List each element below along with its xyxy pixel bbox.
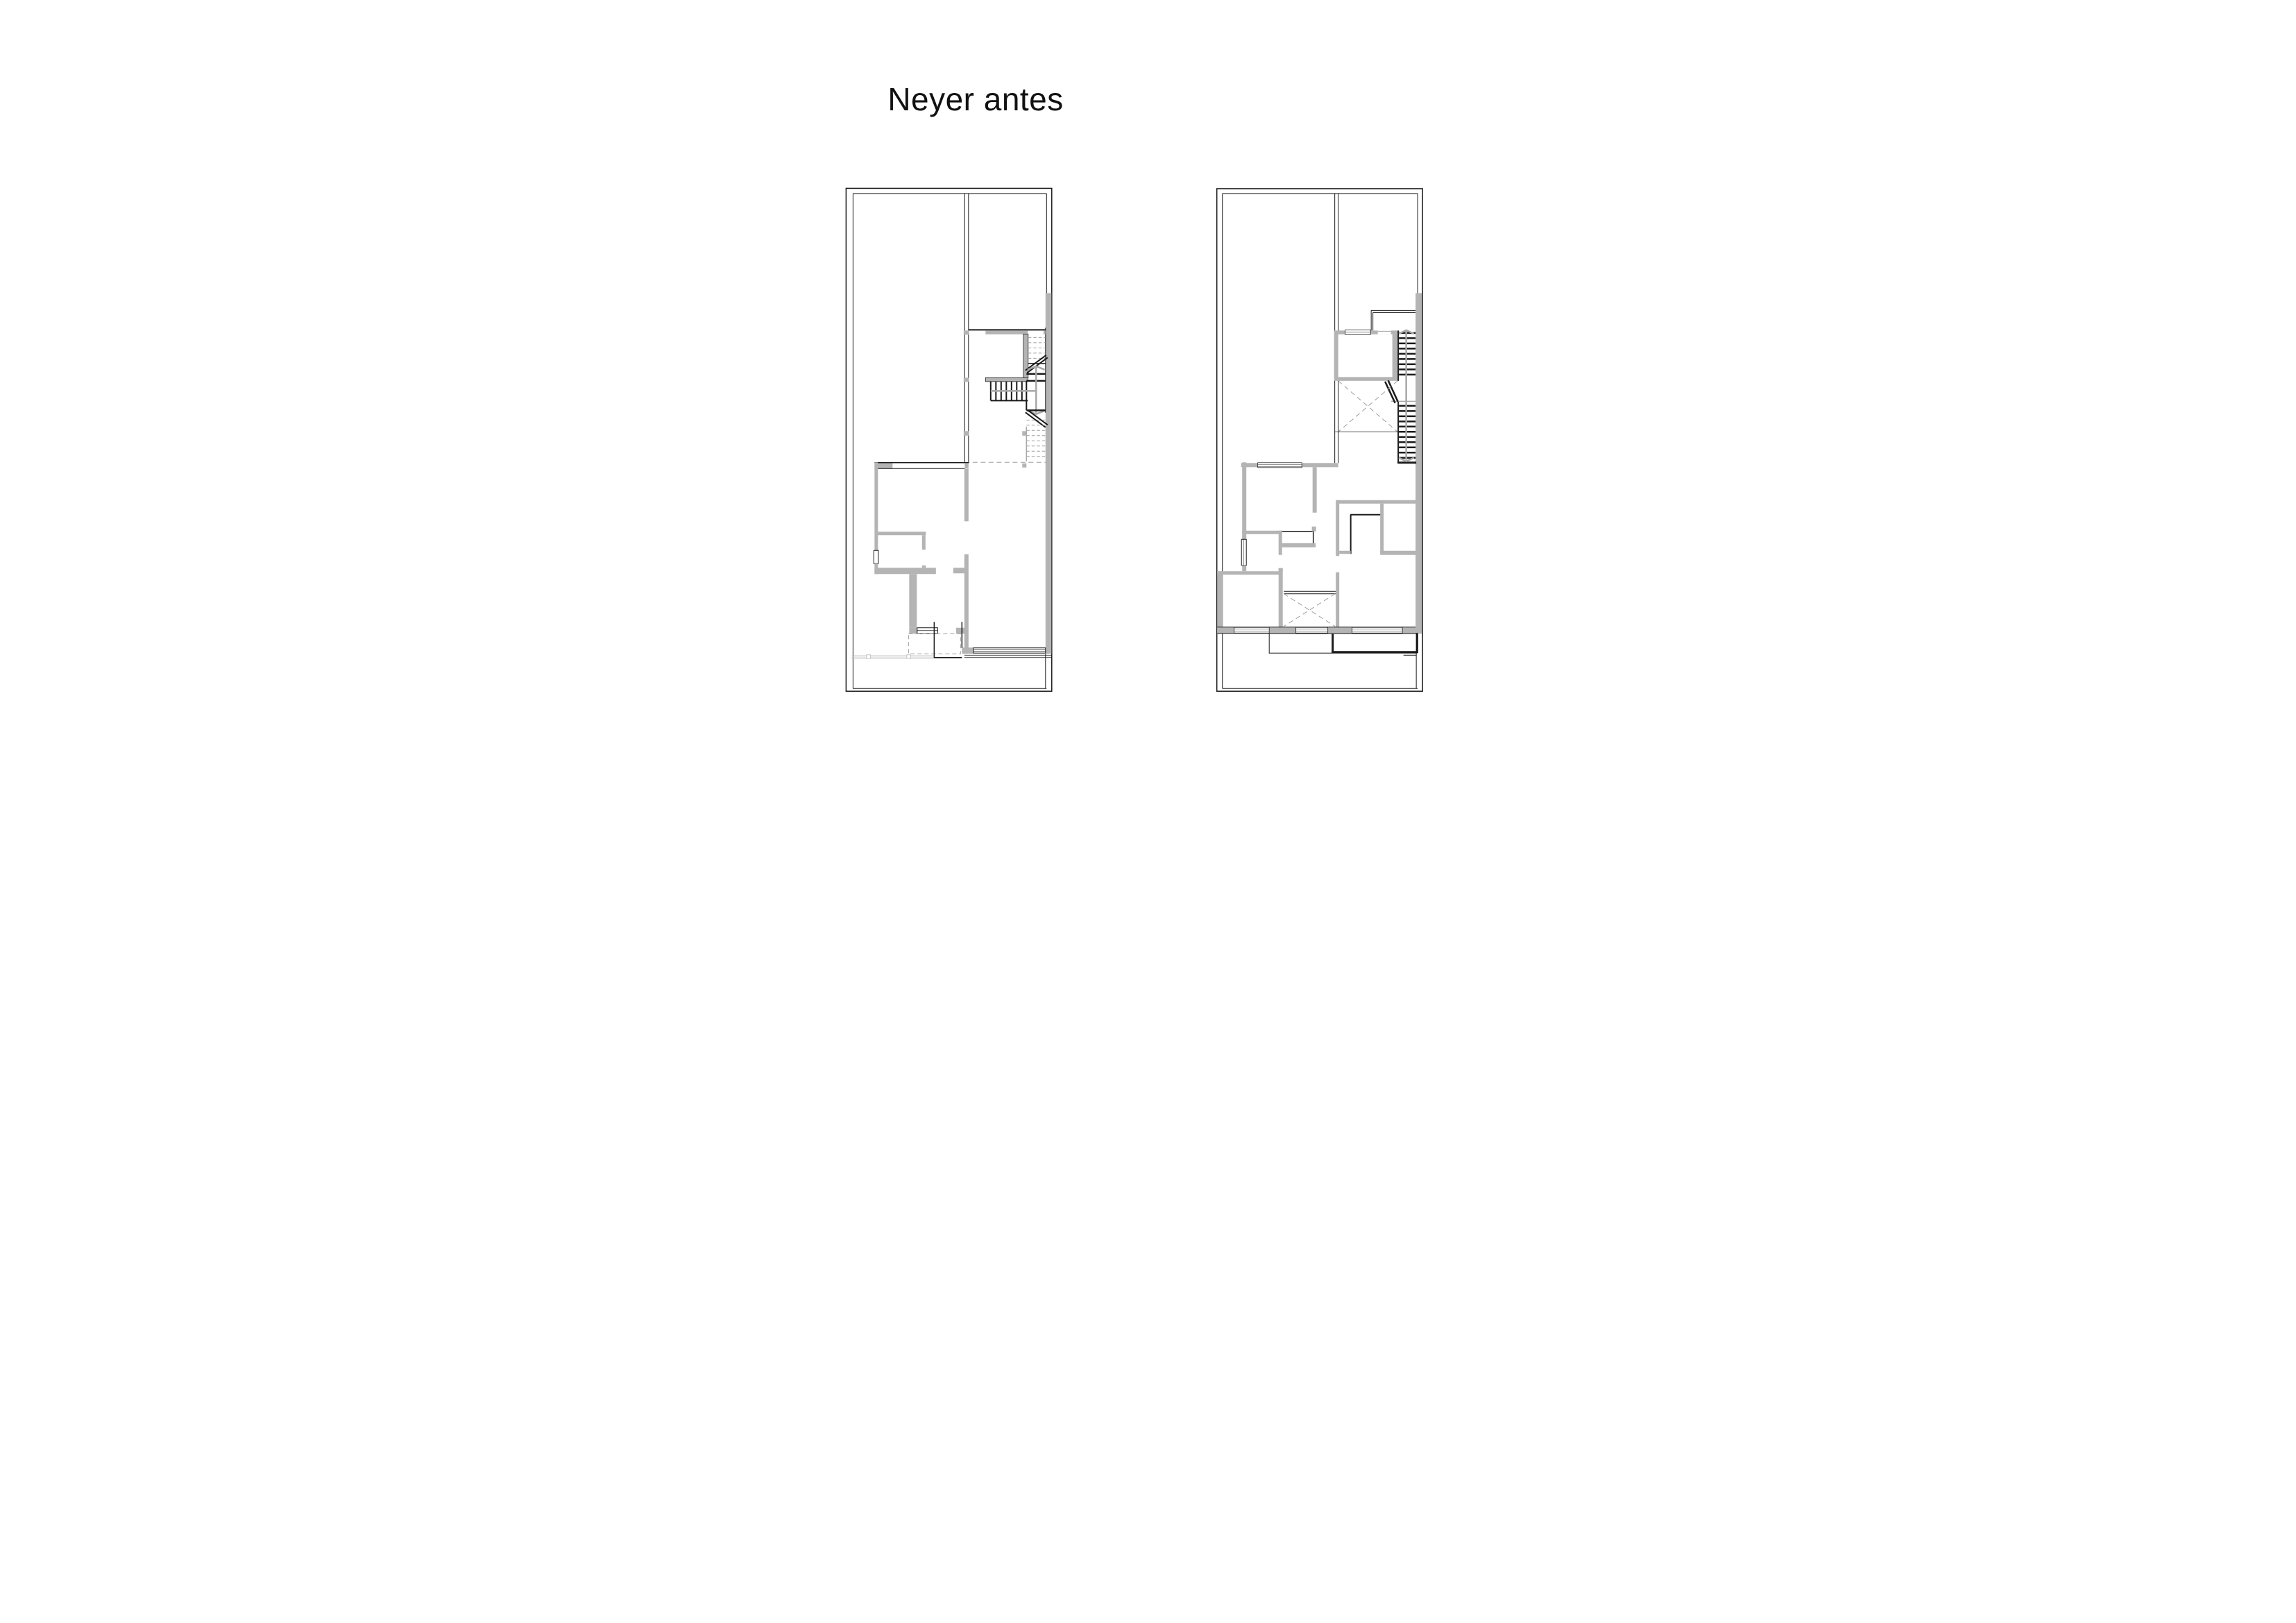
wall xyxy=(1336,500,1416,504)
wall xyxy=(1242,566,1246,571)
wall xyxy=(1217,627,1234,634)
wall xyxy=(1242,462,1246,539)
window xyxy=(1257,463,1301,468)
window xyxy=(1234,627,1268,633)
wall xyxy=(1380,551,1422,555)
wall xyxy=(1312,467,1316,512)
window xyxy=(874,550,878,563)
wall xyxy=(1336,500,1339,556)
fence-post xyxy=(866,655,869,658)
wall-stub xyxy=(955,628,964,634)
wall xyxy=(985,330,1028,334)
stair-wall xyxy=(985,377,1028,381)
floor-plan-left xyxy=(846,188,1051,691)
window xyxy=(973,648,1045,653)
shaft-interior xyxy=(1338,334,1392,377)
wall xyxy=(909,574,917,627)
stair-wall xyxy=(1023,334,1028,377)
drawing-sheet: Neyer antes xyxy=(575,0,1722,811)
wall xyxy=(921,535,925,550)
wall xyxy=(1217,571,1223,634)
plot-outline xyxy=(1216,189,1422,691)
wall-stub xyxy=(1311,527,1316,532)
wall xyxy=(878,532,926,535)
wall xyxy=(909,628,917,634)
wall xyxy=(1043,330,1045,334)
exterior-wall xyxy=(1415,293,1422,633)
fence-post xyxy=(906,655,910,658)
wall xyxy=(874,568,935,574)
wall xyxy=(1327,627,1352,634)
wall-stub xyxy=(1339,551,1350,554)
wall xyxy=(1217,571,1279,575)
window xyxy=(1352,627,1402,633)
exterior-wall xyxy=(1045,293,1051,654)
column xyxy=(1022,464,1026,468)
wall xyxy=(1242,531,1282,534)
wall-stub xyxy=(963,330,968,334)
wall xyxy=(1380,504,1384,553)
wall xyxy=(1278,531,1282,555)
wall xyxy=(964,463,968,468)
sheet-background xyxy=(575,0,1722,811)
wall-stub xyxy=(963,377,968,382)
floor-plan-right xyxy=(1216,189,1422,691)
plot-outline xyxy=(846,188,1051,691)
floor-plan-drawing: Neyer antes xyxy=(575,0,1722,811)
wall xyxy=(1402,627,1422,634)
wall xyxy=(1278,568,1282,634)
column xyxy=(1022,431,1026,435)
wall-stub xyxy=(921,566,925,568)
wall xyxy=(1336,572,1339,629)
wall xyxy=(874,462,878,550)
wall xyxy=(962,647,973,654)
wall xyxy=(964,554,968,654)
closet-wall xyxy=(1282,543,1315,547)
wall-stub xyxy=(963,431,968,435)
wall xyxy=(964,469,968,521)
door-opening xyxy=(1377,330,1391,334)
wall xyxy=(1269,627,1295,634)
drawing-title: Neyer antes xyxy=(887,81,1063,117)
wall-stub xyxy=(953,568,964,573)
window xyxy=(1295,627,1327,633)
